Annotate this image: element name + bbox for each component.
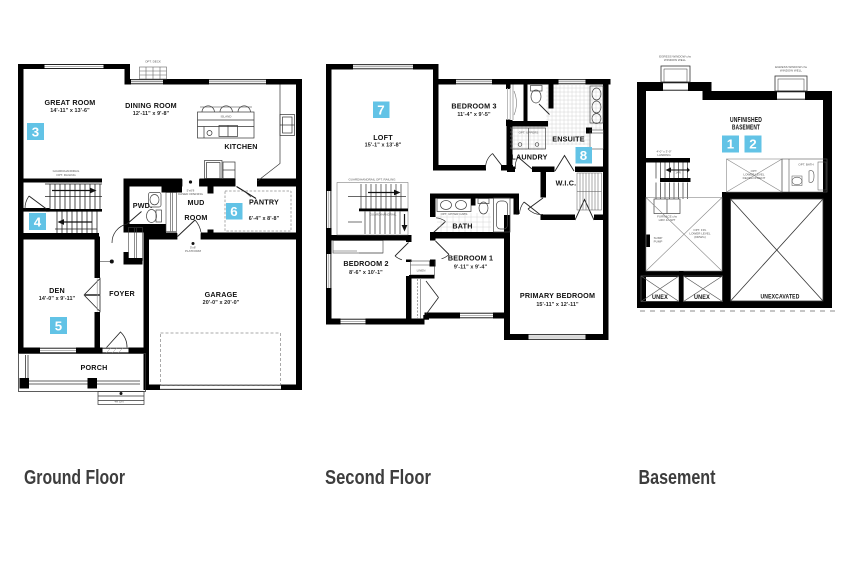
svg-text:Second Floor: Second Floor [325,466,431,489]
svg-text:1: 1 [727,137,735,152]
svg-text:BASEMENT: BASEMENT [732,125,760,132]
svg-text:4: 4 [34,214,42,229]
svg-text:HRV & HWT: HRV & HWT [659,218,676,222]
svg-text:GREAT ROOM: GREAT ROOM [45,98,96,107]
svg-text:15'-1" x 13'-8": 15'-1" x 13'-8" [365,143,402,149]
svg-text:9'-11" x 9'-4": 9'-11" x 9'-4" [454,265,488,271]
svg-text:OPT. DECK: OPT. DECK [145,60,161,64]
svg-text:14'-11" x 13'-6": 14'-11" x 13'-6" [50,108,90,114]
svg-text:OPT. UPPER CABS: OPT. UPPER CABS [441,212,468,216]
svg-text:MUD: MUD [188,198,205,207]
svg-text:OPT. BATH: OPT. BATH [798,163,813,167]
svg-text:Basement: Basement [639,466,716,489]
svg-text:UNEX: UNEX [652,294,669,301]
svg-text:LOFT: LOFT [373,133,393,142]
svg-text:DEN: DEN [49,286,65,295]
svg-text:WINDOW WELL: WINDOW WELL [664,58,686,62]
svg-text:15'-11" x 12'-11": 15'-11" x 12'-11" [536,302,579,308]
svg-text:ROOM: ROOM [184,213,207,222]
svg-text:14'-0" x 9'-11": 14'-0" x 9'-11" [39,296,76,302]
svg-text:UNEXCAVATED: UNEXCAVATED [761,294,800,301]
svg-text:BEDROOM 1: BEDROOM 1 [448,254,493,263]
svg-text:7: 7 [377,102,384,117]
svg-text:PUMP: PUMP [654,240,663,244]
svg-text:BATH: BATH [452,222,472,231]
svg-text:PORCH: PORCH [81,363,108,372]
svg-text:14R: 14R [675,171,681,175]
svg-text:PANTRY: PANTRY [249,198,279,207]
svg-text:OPT. UPPERS: OPT. UPPERS [519,131,539,135]
svg-text:4R DN: 4R DN [114,400,123,404]
svg-text:PWD.: PWD. [133,201,153,210]
svg-text:20'-0" x 20'-0": 20'-0" x 20'-0" [203,300,240,306]
svg-text:GARAGE: GARAGE [205,290,238,299]
svg-text:DINING ROOM: DINING ROOM [125,101,177,110]
svg-text:12'-11" x 9'-8": 12'-11" x 9'-8" [133,111,170,117]
svg-text:Ground Floor: Ground Floor [24,466,125,489]
svg-text:3: 3 [32,124,39,139]
svg-text:LAUNDRY: LAUNDRY [511,153,547,162]
svg-text:PLATFORM: PLATFORM [185,249,202,253]
svg-text:PRIMARY BEDROOM: PRIMARY BEDROOM [520,291,595,300]
svg-text:2: 2 [749,137,756,152]
svg-text:6: 6 [230,204,237,219]
svg-text:6'-4" x 8'-8": 6'-4" x 8'-8" [249,216,280,222]
svg-text:UNFINISHED: UNFINISHED [730,117,762,124]
svg-text:UNEX: UNEX [694,294,711,301]
svg-text:5: 5 [55,318,63,333]
svg-text:DEVELOPMENT: DEVELOPMENT [743,176,766,180]
svg-text:W.I.C.: W.I.C. [556,179,577,188]
svg-text:OPT. RAILING: OPT. RAILING [56,173,76,177]
svg-text:LANDING: LANDING [657,153,671,157]
svg-text:11'-4" x 9'-5": 11'-4" x 9'-5" [457,112,491,118]
svg-text:ISLAND: ISLAND [221,115,233,119]
svg-text:(DRWG): (DRWG) [694,235,705,239]
svg-text:FOYER: FOYER [109,289,135,298]
svg-text:GUARD/HANDRAIL OPT. RAILING: GUARD/HANDRAIL OPT. RAILING [348,178,396,182]
svg-text:WINDOW WELL: WINDOW WELL [780,69,802,73]
svg-text:GUARD/HANDRAIL: GUARD/HANDRAIL [370,213,397,217]
svg-text:LINEN: LINEN [417,269,426,273]
svg-text:8: 8 [580,148,587,163]
svg-text:KITCHEN: KITCHEN [224,142,257,151]
svg-text:BEDROOM 2: BEDROOM 2 [343,259,388,268]
svg-text:ENSUITE: ENSUITE [552,135,585,144]
svg-text:8'-6" x 10'-1": 8'-6" x 10'-1" [349,270,383,276]
svg-text:BEDROOM 3: BEDROOM 3 [451,102,496,111]
